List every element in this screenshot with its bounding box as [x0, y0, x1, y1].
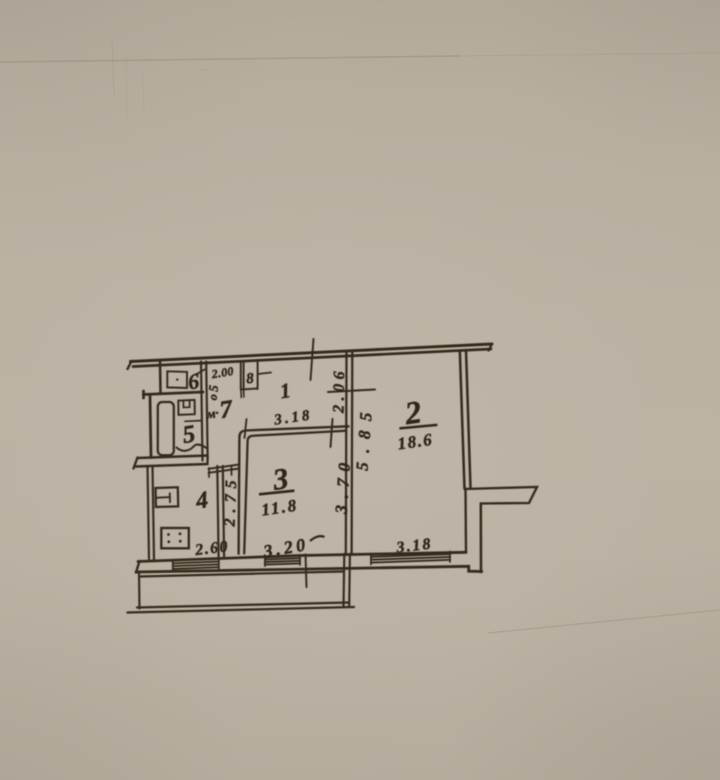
svg-text:м·: м· [205, 405, 220, 422]
svg-text:5: 5 [181, 421, 197, 449]
svg-text:4: 4 [193, 487, 209, 515]
svg-text:5.85: 5.85 [353, 402, 377, 471]
svg-text:1: 1 [278, 378, 292, 403]
svg-text:5: 5 [206, 384, 222, 392]
svg-text:o: o [206, 394, 220, 401]
svg-text:2.75: 2.75 [221, 474, 240, 528]
svg-text:18.6: 18.6 [396, 430, 434, 454]
svg-text:8: 8 [246, 371, 255, 388]
svg-text:2.00: 2.00 [210, 364, 235, 381]
svg-text:2.06: 2.06 [330, 367, 348, 414]
svg-text:3.18: 3.18 [272, 407, 313, 428]
svg-text:3.20: 3.20 [261, 534, 310, 562]
svg-text:11.8: 11.8 [260, 496, 299, 520]
svg-text:7: 7 [218, 396, 236, 425]
